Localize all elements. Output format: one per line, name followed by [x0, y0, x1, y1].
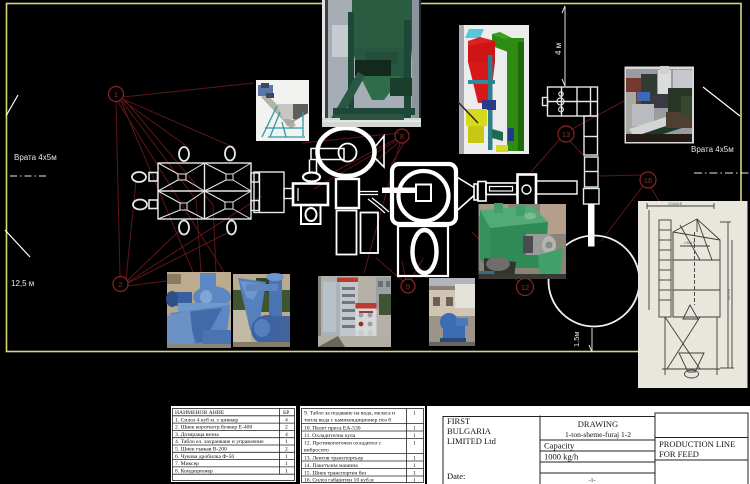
svg-text:1: 1 — [285, 454, 288, 460]
svg-text:6. Чукова дробилка Ф-50: 6. Чукова дробилка Ф-50 — [175, 453, 234, 460]
svg-text:∅1540:8: ∅1540:8 — [668, 202, 682, 206]
svg-text:1: 1 — [413, 463, 416, 469]
svg-text:4: 4 — [285, 417, 288, 423]
svg-text:1: 1 — [413, 478, 416, 484]
svg-text:1-ton-sheme-furaj 1-2: 1-ton-sheme-furaj 1-2 — [565, 430, 631, 439]
svg-text:LIMITED Ltd: LIMITED Ltd — [447, 436, 497, 446]
svg-text:PRODUCTION LINE: PRODUCTION LINE — [659, 439, 735, 449]
svg-text:1: 1 — [285, 461, 288, 467]
svg-text:1: 1 — [413, 433, 416, 439]
svg-text:2: 2 — [118, 280, 122, 289]
svg-text:11. Охладителна кула: 11. Охладителна кула — [304, 433, 356, 439]
svg-text:12. Противопоточен охладител с: 12. Противопоточен охладител с — [304, 441, 382, 447]
svg-text:9: 9 — [406, 282, 410, 291]
svg-text:топла вода с камикондиционер п: топла вода с камикондиционер поз 8 — [304, 418, 391, 424]
svg-text:1: 1 — [285, 468, 288, 474]
svg-text:Врата 4х5м: Врата 4х5м — [691, 145, 734, 154]
svg-text:Date:: Date: — [447, 471, 465, 481]
svg-text:3. Дозираща везна: 3. Дозираща везна — [175, 432, 219, 438]
svg-text:1: 1 — [413, 456, 416, 462]
svg-text:8: 8 — [400, 132, 404, 141]
svg-text:1: 1 — [114, 90, 118, 99]
svg-text:8. Кондиционер: 8. Кондиционер — [175, 468, 213, 474]
svg-text:16. Силоз габаритен 10 куб.м: 16. Силоз габаритен 10 куб.м — [304, 477, 374, 484]
svg-text:1000 kg/h: 1000 kg/h — [544, 452, 579, 462]
svg-text:1: 1 — [413, 411, 416, 417]
svg-text:1: 1 — [413, 441, 416, 447]
svg-text:15. Шнек транспортен без: 15. Шнек транспортен без — [304, 470, 367, 477]
svg-text:DRAWING: DRAWING — [578, 419, 618, 429]
svg-text:13. Лентов транспортьор: 13. Лентов транспортьор — [304, 456, 363, 462]
svg-text:FIRST: FIRST — [447, 416, 471, 426]
svg-text:16: 16 — [644, 176, 652, 185]
svg-text:12,5 м: 12,5 м — [11, 279, 34, 288]
svg-text:FOR FEED: FOR FEED — [659, 449, 699, 459]
svg-text:10. Пелет преса ЕА-530: 10. Пелет преса ЕА-530 — [304, 426, 361, 432]
svg-text:5. Шнек гъвкав В-200: 5. Шнек гъвкав В-200 — [175, 447, 227, 453]
svg-text:1: 1 — [413, 471, 416, 477]
svg-text:14. Пакетъчна машина: 14. Пакетъчна машина — [304, 463, 358, 469]
svg-text:12: 12 — [521, 283, 529, 292]
svg-text:2: 2 — [285, 447, 288, 453]
svg-text:2: 2 — [285, 425, 288, 431]
svg-text:4. Табло ел. захранване и упра: 4. Табло ел. захранване и управление — [175, 438, 264, 445]
svg-text:4 м: 4 м — [554, 43, 563, 55]
svg-text:вибросито: вибросито — [304, 447, 329, 454]
svg-text:9. Табло за подаване на вода,: 9. Табло за подаване на вода, меласа и — [304, 410, 395, 417]
svg-text:4: 4 — [285, 432, 288, 438]
svg-text:Врата 4х5м: Врата 4х5м — [14, 153, 57, 162]
svg-text:∅530:8: ∅530:8 — [684, 241, 695, 245]
svg-text:BULGARIA: BULGARIA — [447, 426, 492, 436]
svg-text:1: 1 — [285, 439, 288, 445]
svg-text:1. Силоз 4 куб м. с шнекер: 1. Силоз 4 куб м. с шнекер — [175, 416, 238, 423]
svg-text:4870:8: 4870:8 — [727, 289, 731, 300]
svg-text:7. Миксер: 7. Миксер — [175, 461, 199, 467]
svg-text:1: 1 — [413, 426, 416, 432]
svg-text:БР.: БР. — [283, 410, 291, 416]
svg-text:2. Шнек короткотр.бункер Е-400: 2. Шнек короткотр.бункер Е-400 — [175, 424, 252, 431]
svg-text:Capacity: Capacity — [544, 441, 575, 451]
svg-text:-1-: -1- — [589, 478, 596, 484]
svg-text:13: 13 — [562, 130, 570, 139]
svg-text:НАИМЕНОВ АНИЕ: НАИМЕНОВ АНИЕ — [175, 410, 225, 416]
svg-text:1.5м: 1.5м — [572, 331, 581, 347]
